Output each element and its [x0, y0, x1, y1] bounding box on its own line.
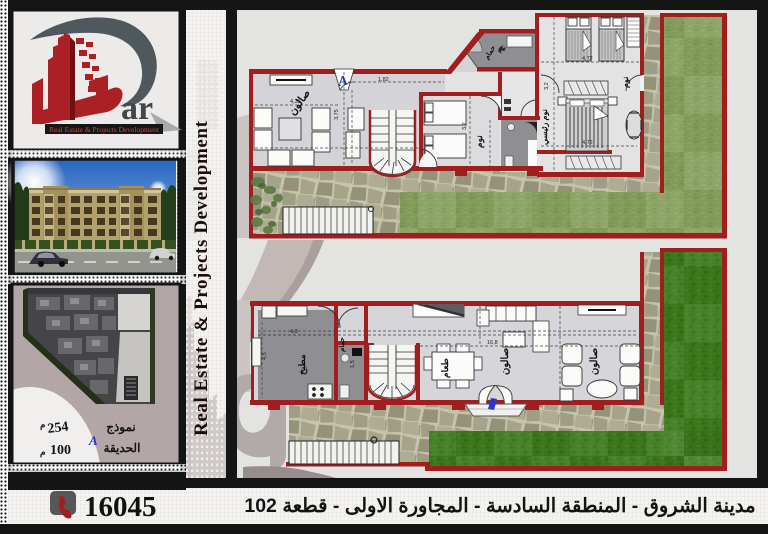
svg-text:3,2: 3,2 [544, 82, 550, 90]
svg-text:مطبخ: مطبخ [297, 354, 308, 375]
svg-text:4,5: 4,5 [262, 352, 268, 360]
svg-text:100: 100 [50, 443, 71, 458]
svg-text:مدينة الشروق - المنطقة السادسة: مدينة الشروق - المنطقة السادسة - المجاور… [244, 495, 755, 518]
svg-text:م: م [40, 447, 46, 458]
svg-text:الحديقة: الحديقة [104, 441, 141, 455]
svg-text:4,72: 4,72 [582, 56, 593, 62]
svg-text:Real Estate & Projects Develop: Real Estate & Projects Development [191, 120, 212, 436]
svg-text:A: A [88, 433, 98, 448]
svg-text:16,8: 16,8 [487, 340, 498, 346]
svg-text:3,75: 3,75 [334, 109, 340, 120]
svg-text:صالون: صالون [589, 348, 600, 375]
svg-text:طعام: طعام [440, 358, 451, 378]
svg-text:Real Estate & Projects Develop: Real Estate & Projects Development [49, 125, 160, 134]
svg-text:254: 254 [47, 420, 70, 437]
svg-text:نوم: نوم [621, 77, 631, 88]
svg-text:16045: 16045 [84, 491, 157, 523]
svg-text:نموذج: نموذج [106, 420, 136, 435]
svg-text:1,5: 1,5 [350, 360, 356, 368]
svg-text:ar: ar [121, 90, 153, 127]
svg-text:3,2: 3,2 [462, 122, 468, 130]
svg-text:1,82: 1,82 [378, 77, 389, 83]
svg-text:صالون: صالون [500, 348, 511, 375]
svg-text:4,72: 4,72 [582, 140, 593, 146]
svg-text:حمام: حمام [338, 337, 346, 352]
svg-text:نوم: نوم [474, 135, 485, 148]
svg-text:نوم رئيسي: نوم رئيسي [540, 109, 550, 145]
svg-text:4,3: 4,3 [290, 329, 298, 335]
